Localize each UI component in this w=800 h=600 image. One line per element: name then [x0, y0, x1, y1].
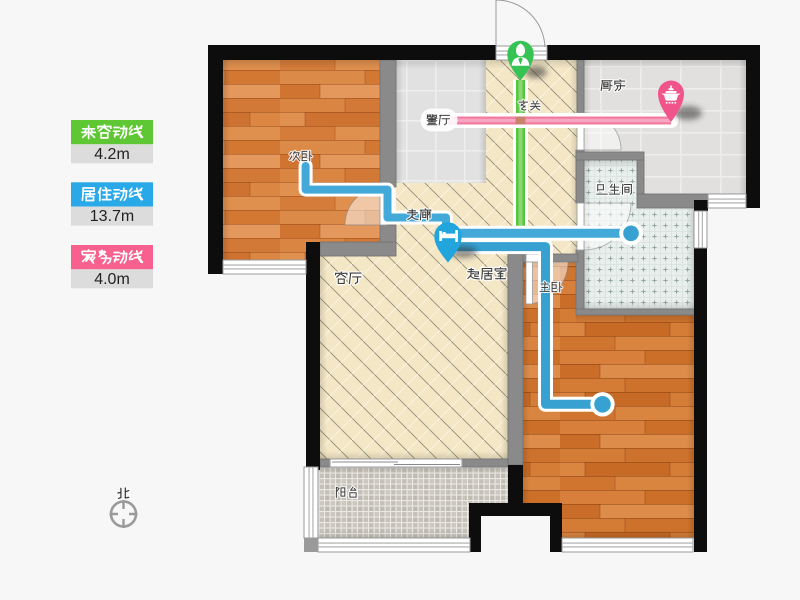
svg-text:13.7m: 13.7m: [90, 208, 134, 225]
svg-text:4.0m: 4.0m: [94, 271, 130, 288]
svg-text:4.2m: 4.2m: [94, 146, 130, 163]
